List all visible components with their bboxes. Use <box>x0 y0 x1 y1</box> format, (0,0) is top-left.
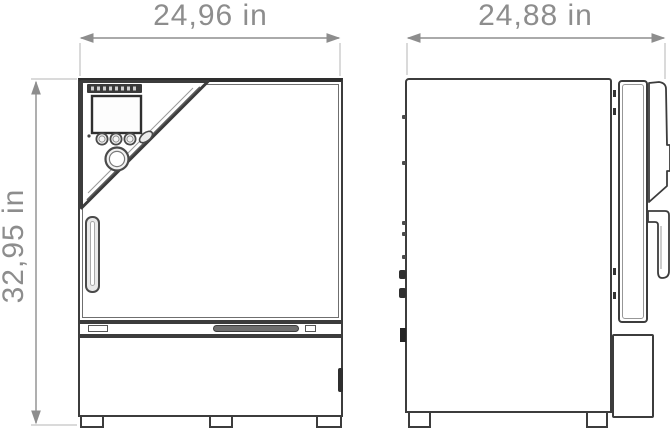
front-width-label: 24,96 in <box>78 0 343 32</box>
dimension-lines-layer <box>0 0 670 430</box>
front-height-label: 32,95 in <box>0 136 30 356</box>
dimension-drawing: 24,96 in 24,88 in 32,95 in <box>0 0 670 430</box>
side-depth-label: 24,88 in <box>405 0 666 32</box>
extension-lines <box>31 43 665 425</box>
dimension-arrows <box>36 38 664 423</box>
